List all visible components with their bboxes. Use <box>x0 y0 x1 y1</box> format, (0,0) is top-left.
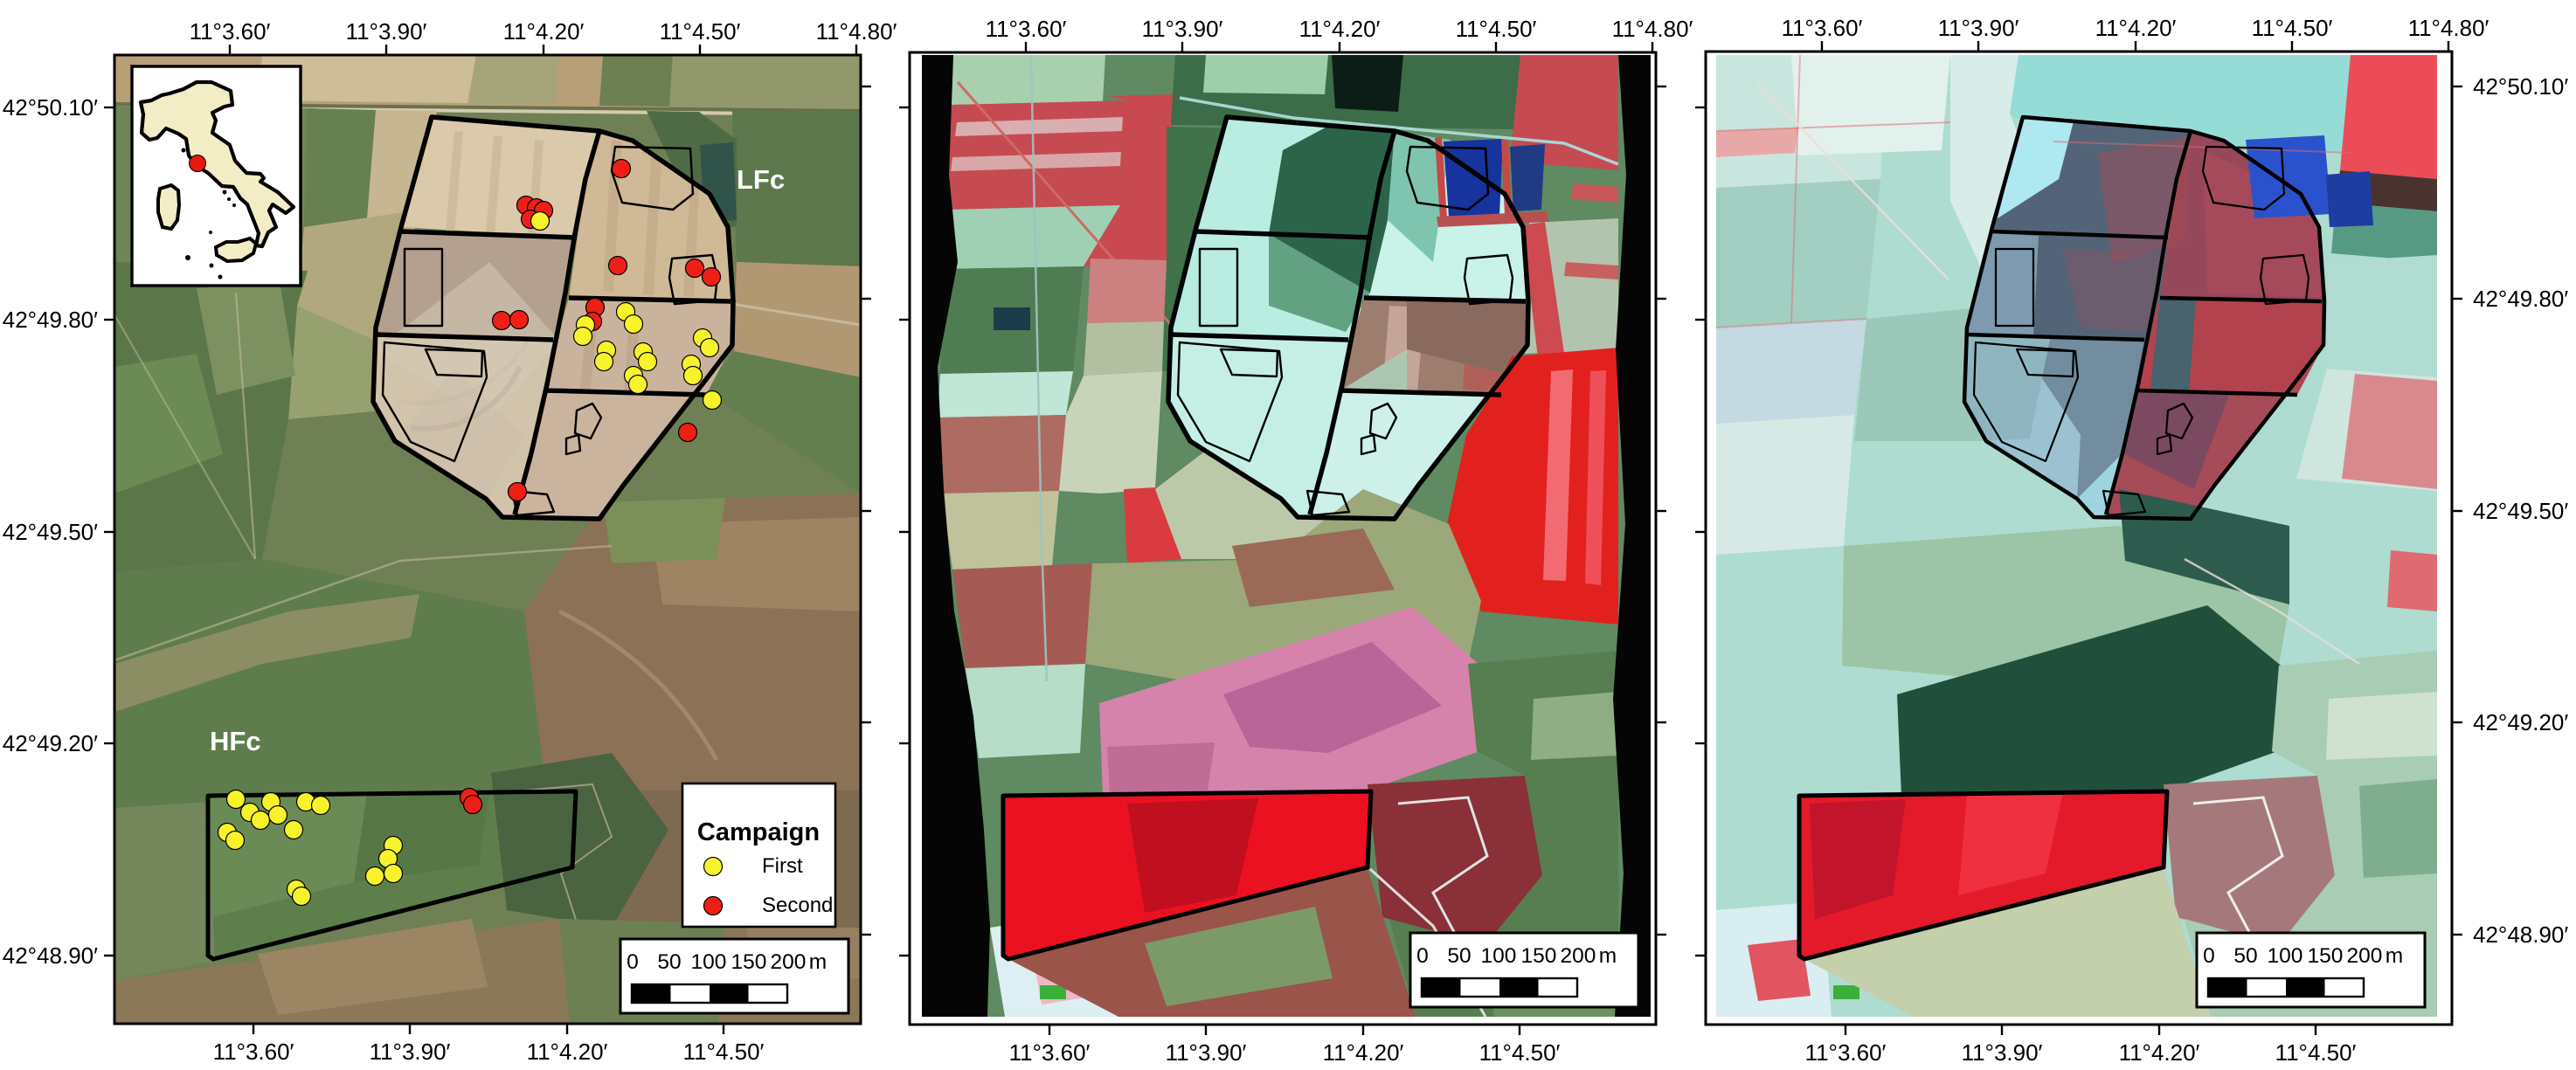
svg-text:50: 50 <box>657 950 681 974</box>
svg-text:0: 0 <box>1416 944 1429 968</box>
svg-text:11°4.50′: 11°4.50′ <box>1456 16 1537 42</box>
svg-text:HFc: HFc <box>210 726 261 756</box>
svg-text:11°3.90′: 11°3.90′ <box>1166 1039 1247 1066</box>
svg-text:11°3.90′: 11°3.90′ <box>1938 15 2019 41</box>
svg-text:11°3.60′: 11°3.60′ <box>190 18 271 45</box>
svg-text:11°4.20′: 11°4.20′ <box>503 18 585 45</box>
svg-text:Campaign: Campaign <box>697 818 820 846</box>
svg-text:150: 150 <box>731 950 767 974</box>
svg-text:42°50.10′: 42°50.10′ <box>2473 73 2568 100</box>
svg-text:11°4.20′: 11°4.20′ <box>2095 15 2177 41</box>
svg-text:150: 150 <box>1521 944 1557 968</box>
svg-text:150: 150 <box>2308 944 2344 968</box>
svg-text:m: m <box>2386 944 2403 968</box>
svg-text:11°4.80′: 11°4.80′ <box>816 18 897 45</box>
svg-text:42°48.90′: 42°48.90′ <box>3 942 98 969</box>
svg-text:42°49.80′: 42°49.80′ <box>2473 286 2568 312</box>
svg-text:First: First <box>762 854 803 878</box>
svg-text:11°3.60′: 11°3.60′ <box>213 1039 294 1065</box>
svg-text:11°4.80′: 11°4.80′ <box>2408 15 2489 41</box>
svg-text:100: 100 <box>1481 944 1517 968</box>
svg-text:200: 200 <box>771 950 807 974</box>
svg-text:11°4.20′: 11°4.20′ <box>1323 1039 1404 1066</box>
svg-text:50: 50 <box>1447 944 1471 968</box>
svg-text:100: 100 <box>2268 944 2303 968</box>
svg-text:100: 100 <box>691 950 727 974</box>
svg-text:42°49.50′: 42°49.50′ <box>2473 498 2568 524</box>
svg-text:11°3.90′: 11°3.90′ <box>1142 16 1223 42</box>
svg-text:200: 200 <box>1561 944 1596 968</box>
svg-text:11°4.50′: 11°4.50′ <box>660 18 741 45</box>
svg-text:11°4.50′: 11°4.50′ <box>1479 1039 1561 1066</box>
svg-text:42°49.80′: 42°49.80′ <box>3 307 98 333</box>
svg-text:11°3.90′: 11°3.90′ <box>370 1039 451 1065</box>
svg-text:LFc: LFc <box>737 164 785 195</box>
svg-text:11°3.90′: 11°3.90′ <box>346 18 427 45</box>
svg-text:11°3.90′: 11°3.90′ <box>1962 1039 2043 1066</box>
svg-text:42°50.10′: 42°50.10′ <box>3 94 98 121</box>
svg-text:Second: Second <box>762 894 833 917</box>
svg-text:11°4.80′: 11°4.80′ <box>1612 16 1693 42</box>
svg-text:11°4.20′: 11°4.20′ <box>2119 1039 2200 1066</box>
svg-text:42°49.50′: 42°49.50′ <box>3 519 98 545</box>
svg-text:m: m <box>1599 944 1617 968</box>
svg-text:200: 200 <box>2347 944 2383 968</box>
svg-text:m: m <box>809 950 827 974</box>
svg-text:11°4.50′: 11°4.50′ <box>683 1039 765 1065</box>
svg-text:11°4.20′: 11°4.20′ <box>527 1039 608 1065</box>
svg-text:11°4.20′: 11°4.20′ <box>1299 16 1381 42</box>
svg-text:50: 50 <box>2233 944 2257 968</box>
svg-text:11°4.50′: 11°4.50′ <box>2252 15 2333 41</box>
svg-text:42°49.20′: 42°49.20′ <box>3 730 98 756</box>
svg-text:0: 0 <box>627 950 639 974</box>
svg-text:42°49.20′: 42°49.20′ <box>2473 709 2568 735</box>
svg-text:11°4.50′: 11°4.50′ <box>2275 1039 2357 1066</box>
svg-text:0: 0 <box>2203 944 2215 968</box>
svg-text:11°3.60′: 11°3.60′ <box>1009 1039 1091 1066</box>
svg-text:42°48.90′: 42°48.90′ <box>2473 922 2568 948</box>
svg-text:11°3.60′: 11°3.60′ <box>986 16 1067 42</box>
svg-text:11°3.60′: 11°3.60′ <box>1782 15 1863 41</box>
svg-text:11°3.60′: 11°3.60′ <box>1805 1039 1887 1066</box>
